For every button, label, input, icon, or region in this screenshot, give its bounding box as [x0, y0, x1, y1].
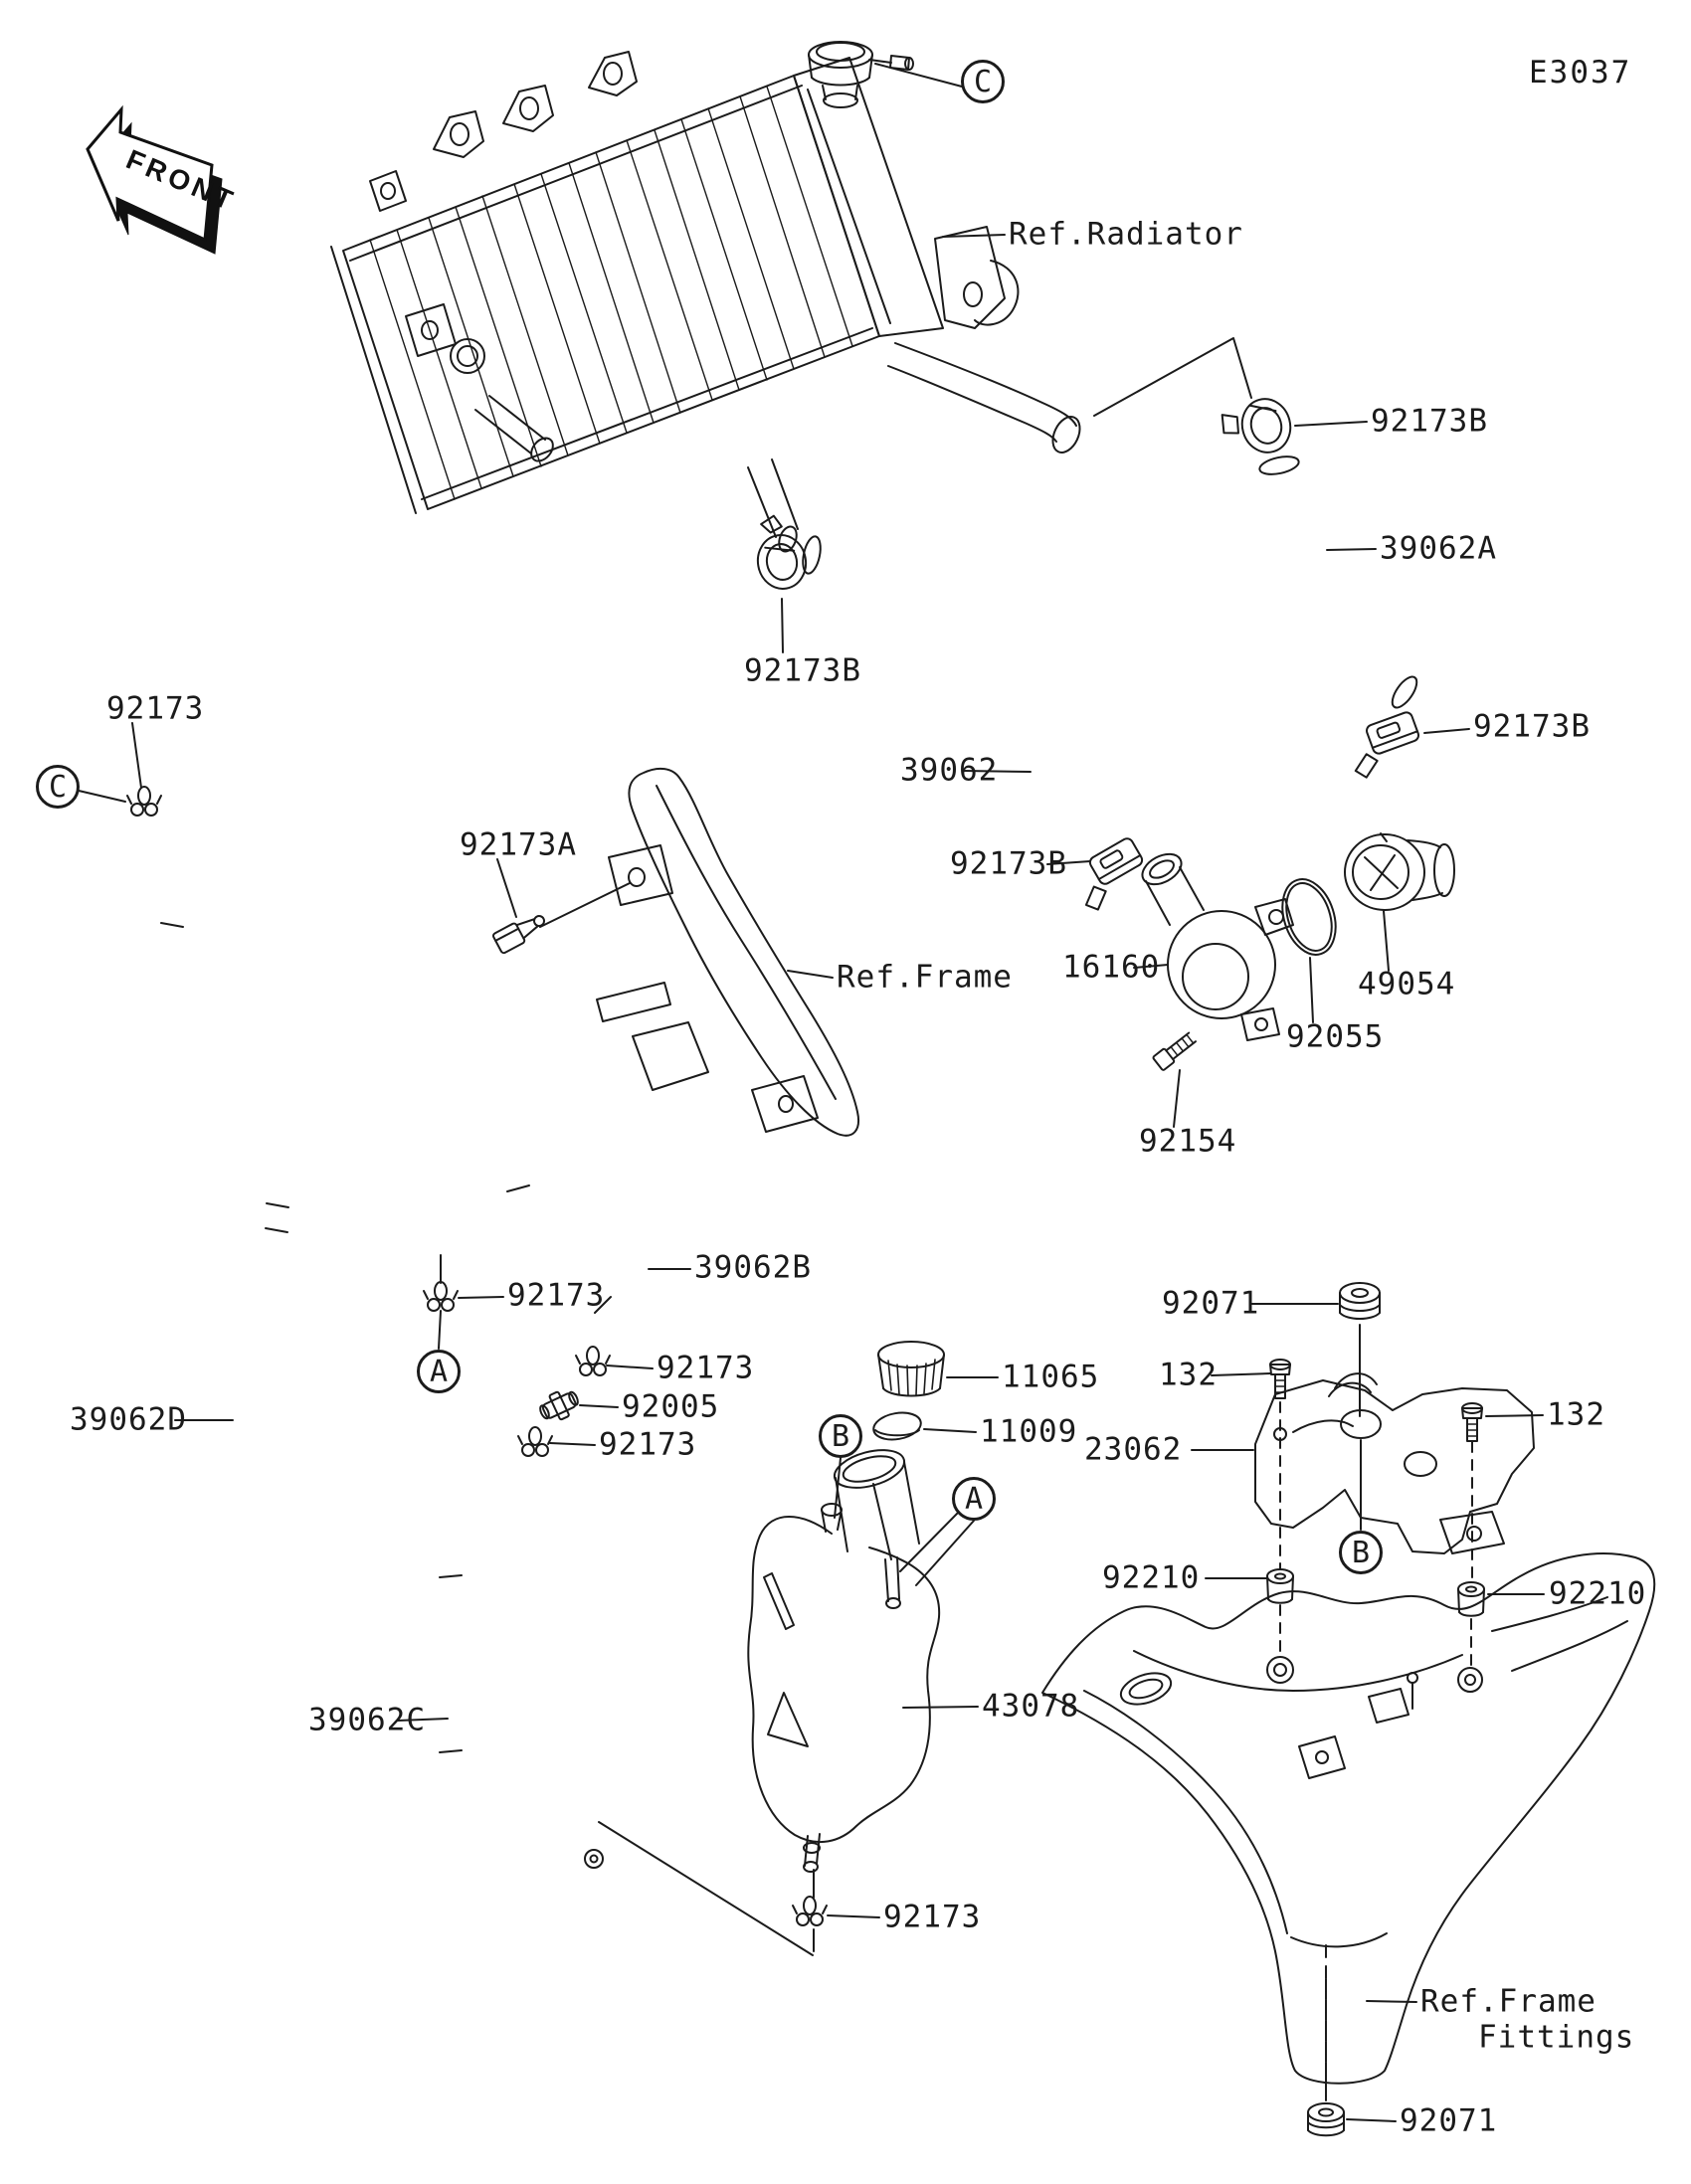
hose-39062c [440, 1516, 603, 1905]
radiator [331, 42, 1085, 554]
part-label-23062: 23062 [1084, 1435, 1182, 1466]
clip-92173-bottom [793, 1897, 827, 1925]
hose-39062d [46, 1108, 441, 1559]
part-label-39062: 39062 [900, 756, 998, 787]
tank-cap-11065 [878, 1342, 944, 1396]
radiator-side-bracket [935, 227, 1018, 328]
part-label-92210-left: 92210 [1102, 1563, 1200, 1594]
clamp-92173b-right [1343, 711, 1426, 781]
part-label-ref-frame: Ref.Frame [837, 963, 1013, 994]
drawing-code: E3037 [1529, 55, 1631, 91]
part-label-92071-bottom: 92071 [1400, 2106, 1497, 2137]
part-label-92173-c: 92173 [106, 694, 204, 725]
reserve-tank [748, 1443, 939, 1872]
hose-39062b [161, 808, 621, 1335]
part-label-132-left: 132 [1159, 1361, 1218, 1391]
part-label-39062a: 39062A [1380, 534, 1497, 565]
part-label-92173-mid3: 92173 [599, 1430, 696, 1461]
part-label-92154: 92154 [1139, 1127, 1236, 1158]
part-label-ref-frame-fittings-1: Ref.Frame [1420, 1987, 1597, 2018]
collar-92210-right [1458, 1582, 1484, 1616]
clip-92173-mid2 [576, 1347, 610, 1375]
part-label-49054: 49054 [1358, 970, 1455, 1001]
radiator-fins [370, 87, 852, 499]
part-label-92173-mid2: 92173 [657, 1354, 754, 1384]
part-label-43078: 43078 [982, 1692, 1079, 1723]
leader-lines [79, 64, 1544, 2121]
bracket-23062 [1255, 1373, 1534, 1553]
part-label-132-right: 132 [1547, 1400, 1605, 1431]
hose-39062 [800, 535, 1142, 875]
ref-bubble-b-bracket: B [1339, 1531, 1383, 1574]
frame-cover [597, 769, 858, 1136]
diagram-art: FRONT [0, 0, 1691, 2184]
grommet-92071-bottom [1308, 2103, 1344, 2135]
radiator-cap [809, 42, 913, 107]
clip-92173-a [424, 1282, 458, 1311]
water-pipe-fitting-16160 [1137, 848, 1293, 1040]
o-ring-92055 [1273, 872, 1345, 962]
part-label-ref-radiator: Ref.Radiator [1009, 220, 1243, 251]
clip-92173-c [127, 787, 161, 816]
ref-bubble-a-tank: A [952, 1477, 996, 1521]
hose-39062a [1258, 454, 1421, 711]
ref-bubble-c-top: C [961, 60, 1005, 103]
air-bleed-sensor-92173a [492, 910, 549, 954]
parts-diagram-page: FRONT [0, 0, 1691, 2184]
grommet-92071-top [1340, 1283, 1380, 1319]
part-label-39062d: 39062D [70, 1405, 187, 1436]
part-label-16160: 16160 [1062, 953, 1160, 984]
clip-92173-mid3 [518, 1427, 552, 1456]
part-label-92055: 92055 [1286, 1022, 1384, 1053]
part-label-92173-bottom: 92173 [883, 1903, 981, 1933]
part-label-92173b-pump: 92173B [950, 849, 1067, 880]
part-label-11065: 11065 [1002, 1363, 1099, 1393]
ref-bubble-b-tank: B [819, 1414, 862, 1458]
part-label-92071-top: 92071 [1162, 1289, 1259, 1320]
clamp-92173b-top-right [1218, 394, 1296, 463]
part-label-92173b-mid: 92173B [744, 656, 861, 687]
part-label-39062c: 39062C [308, 1706, 426, 1736]
bolt-92154 [1153, 1030, 1198, 1070]
front-direction-arrow: FRONT [88, 109, 241, 254]
cap-gasket-11009 [871, 1409, 923, 1443]
part-label-92173a: 92173A [460, 830, 577, 861]
ref-bubble-c-left: C [36, 765, 80, 809]
part-label-92173-a: 92173 [507, 1281, 605, 1312]
bolt-132-left [1270, 1360, 1290, 1398]
part-label-39062b: 39062B [694, 1253, 812, 1284]
part-label-92173b-top-right: 92173B [1371, 407, 1488, 438]
part-label-ref-frame-fittings-2: Fittings [1478, 2023, 1634, 2054]
part-label-92005: 92005 [622, 1392, 719, 1423]
joint-fitting-92005 [536, 1385, 583, 1426]
part-label-92210-right: 92210 [1549, 1579, 1646, 1610]
bolt-132-right [1462, 1403, 1482, 1441]
part-label-92173b-right: 92173B [1473, 712, 1591, 743]
collar-92210-left [1267, 1569, 1293, 1603]
part-label-11009: 11009 [980, 1417, 1077, 1448]
ref-bubble-a-left: A [417, 1350, 461, 1393]
thermostat-49054 [1345, 833, 1454, 910]
